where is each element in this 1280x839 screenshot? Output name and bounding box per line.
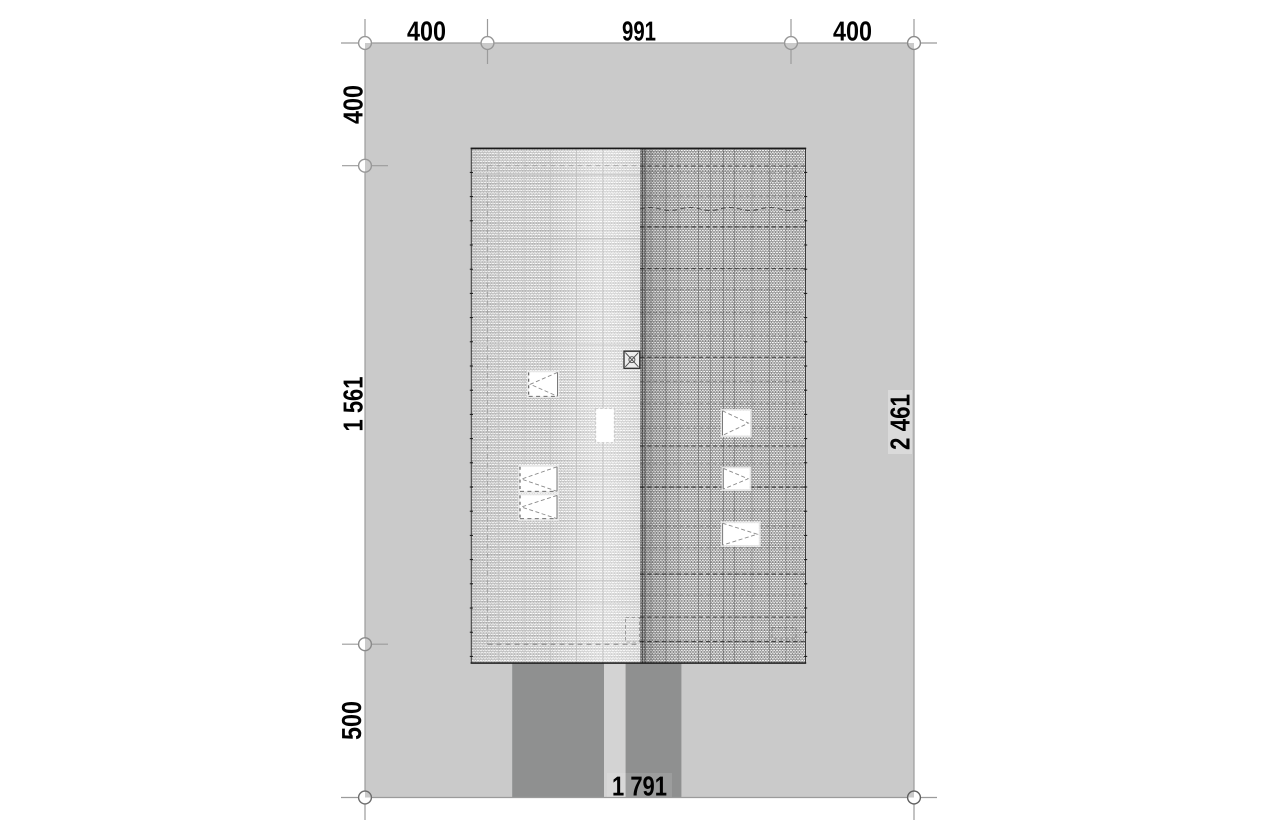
svg-text:991: 991 — [622, 16, 656, 47]
svg-text:400: 400 — [833, 16, 872, 47]
svg-text:1 791: 1 791 — [612, 770, 667, 801]
svg-text:400: 400 — [407, 16, 446, 47]
svg-text:2 461: 2 461 — [885, 394, 916, 450]
svg-text:500: 500 — [336, 701, 367, 740]
svg-text:400: 400 — [338, 85, 369, 124]
svg-text:1 561: 1 561 — [338, 377, 369, 432]
